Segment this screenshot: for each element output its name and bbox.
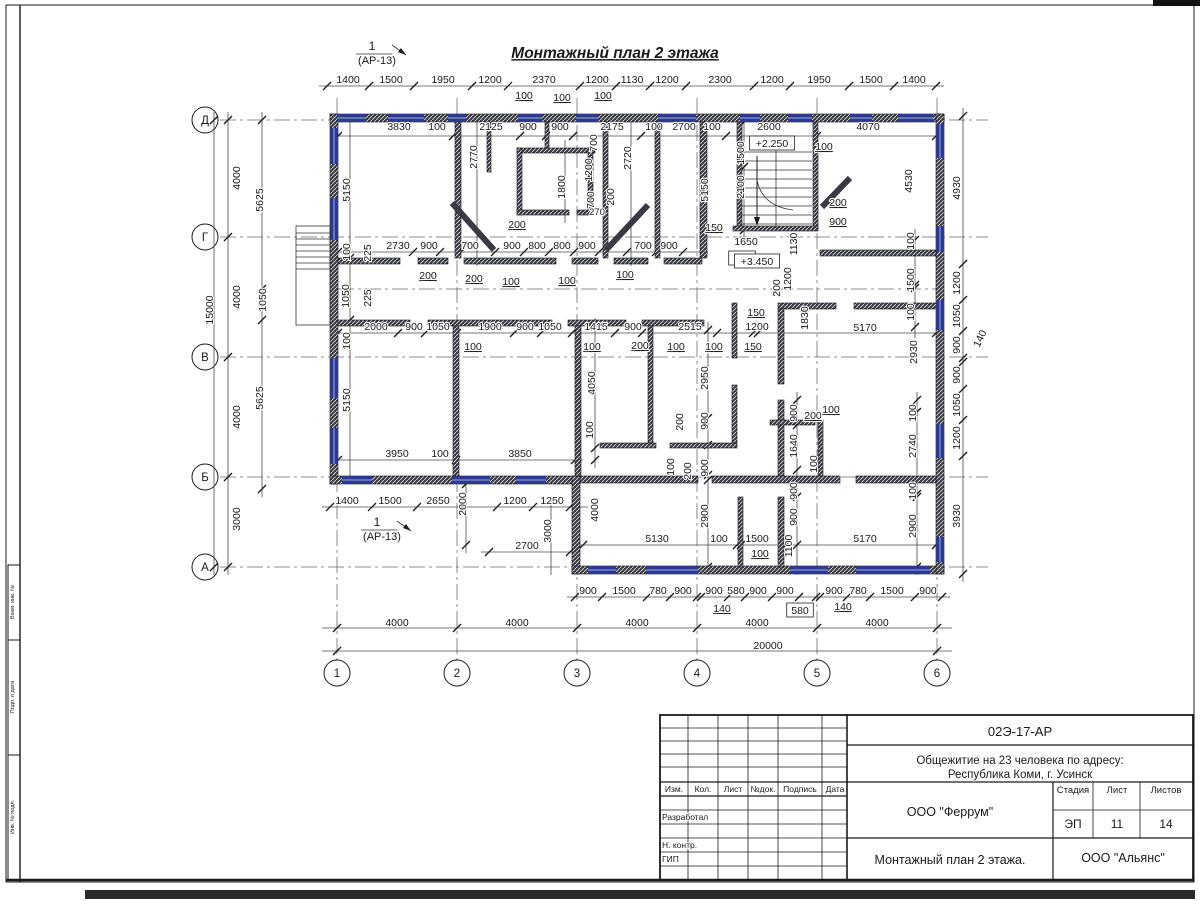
dim-label: 140 [713, 603, 731, 615]
dim-label: 1200 [951, 426, 963, 450]
dim-label: 4000 [385, 617, 409, 629]
scan-artifact [1153, 0, 1200, 6]
dim-label: 900 [749, 585, 767, 597]
dim-label: 900 [624, 321, 642, 333]
dim-label: 1050 [951, 304, 963, 328]
dim-label: 900 [674, 585, 692, 597]
dim-label: 2125 [479, 121, 503, 133]
dim-label: 2700 [672, 121, 696, 133]
dimension-labels: 1400150019501200237012001130120023001200… [204, 39, 989, 652]
dim-label: 1650 [734, 236, 758, 248]
dim-label: 200 [771, 279, 783, 297]
title-block-col-sign: Подпись [783, 784, 817, 794]
dim-label: 900 [951, 336, 963, 354]
dim-label: 1400 [902, 74, 926, 86]
wall-partition [856, 476, 936, 483]
dim-label: 4000 [865, 617, 889, 629]
dim-label: 900 [579, 585, 597, 597]
wall-partition [600, 443, 656, 448]
dim-label: 1100 [783, 535, 795, 558]
dim-label: 900 [788, 482, 800, 500]
title-block-row-ncontr: Н. контр. [662, 840, 697, 850]
dim-label: +2.250 [756, 138, 789, 150]
stamp-label-box1: Взам. инв. № [10, 585, 16, 619]
dim-label: 100 [594, 90, 612, 102]
dim-label: 150 [744, 341, 762, 353]
dim-label: 2000 [457, 492, 469, 516]
wall-partition [580, 476, 698, 483]
dim-label: 200 [674, 413, 686, 431]
dim-label: 1830 [799, 306, 811, 330]
wall-partition [614, 258, 648, 264]
dim-label: 1415 [584, 321, 608, 333]
wall-partition [670, 443, 737, 448]
dim-label: 100 [464, 341, 482, 353]
axis-label-row: Д [201, 115, 209, 127]
dim-label: 140 [834, 601, 852, 613]
title-block-contractor-org: ООО "Альянс" [1081, 851, 1165, 865]
dim-label: 900 [951, 366, 963, 384]
dim-label: 2740 [907, 434, 919, 458]
dim-label: 1500 [379, 74, 403, 86]
section-marker-number: 1 [369, 39, 376, 53]
wall-partition [418, 258, 448, 264]
wall-partition [732, 303, 737, 358]
dim-label: 1800 [556, 175, 568, 199]
wall-partition [712, 476, 840, 483]
axis-label-col: 6 [934, 668, 940, 680]
dim-label: 1500 [880, 585, 904, 597]
stamp-label-box2: Подп. и дата [10, 680, 16, 713]
dim-label: 1500 [745, 533, 769, 545]
dim-label: 900 [825, 585, 843, 597]
dim-label: 100 [907, 482, 919, 500]
dim-label: 1200 [503, 495, 527, 507]
dim-label: 1050 [257, 288, 269, 312]
dim-label: 1200 [760, 74, 784, 86]
wall-partition [655, 122, 660, 258]
wall-partition [778, 309, 784, 384]
dim-label: 100 [667, 341, 685, 353]
dim-label: 200 [631, 340, 649, 352]
dim-label: 900 [420, 240, 438, 252]
wall-partition [517, 148, 595, 153]
title-block-designer-org: ООО "Феррум" [907, 805, 993, 819]
dim-label: 700 [588, 134, 600, 152]
dim-label: 200 [465, 273, 483, 285]
dim-label: 200 [682, 462, 694, 480]
dim-label: 900 [516, 321, 534, 333]
dim-label: 900 [705, 585, 723, 597]
wall-partition [517, 210, 569, 215]
wall-partition [664, 258, 702, 264]
wall-partition [572, 258, 598, 264]
stamp-label-box3: Инв. № подл. [10, 799, 16, 834]
dim-label: 1200 [951, 271, 963, 295]
dim-label: 2770 [468, 145, 480, 169]
dim-label: 2730 [386, 240, 410, 252]
title-block-sheet-title: Монтажный план 2 этажа. [875, 853, 1026, 867]
dim-label: 100 [705, 341, 723, 353]
title-block-doc-number: 02Э-17-АР [988, 724, 1052, 739]
dim-label: 900 [503, 240, 521, 252]
dim-label: 1400 [335, 495, 359, 507]
dim-label: 100 [583, 341, 601, 353]
dim-label: 1200 [478, 74, 502, 86]
dim-label: 5625 [254, 386, 266, 410]
dim-label: 1130 [788, 233, 800, 256]
dim-label: 2300 [708, 74, 732, 86]
dim-label: 4050 [586, 371, 598, 395]
title-block-sheets-label: Листов [1151, 785, 1182, 796]
section-marker-ref: (АР-13) [358, 55, 396, 67]
dim-label: 100 [584, 421, 596, 439]
dim-label: 4930 [951, 176, 963, 200]
wall-partition [813, 122, 818, 228]
dim-label: 4000 [505, 617, 529, 629]
dim-label: 1500 [378, 495, 402, 507]
dim-label: 200 [804, 410, 822, 422]
dim-label: 20000 [753, 640, 782, 652]
title-block-col-date: Дата [826, 784, 845, 794]
dim-label: 780 [649, 585, 667, 597]
title-block-sheet: 11 [1111, 817, 1124, 831]
dim-label: 900 [919, 585, 937, 597]
dim-label: 200 [829, 197, 847, 209]
dim-label: 1500 [859, 74, 883, 86]
drawing-title: Монтажный план 2 этажа [511, 45, 719, 62]
dim-label: 1250 [540, 495, 564, 507]
dim-label: 1200 [782, 267, 794, 291]
title-block: 02Э-17-АРОбщежитие на 23 человека по адр… [660, 715, 1193, 880]
wall-partition [737, 122, 742, 228]
dim-label: 2930 [908, 340, 920, 364]
dim-label: 1200 [585, 74, 609, 86]
dim-label: 1500 [905, 268, 917, 292]
dim-label: 4530 [903, 169, 915, 193]
dim-label: 2900 [699, 504, 711, 528]
dim-label: 900 [788, 404, 800, 422]
dim-label: 1900 [478, 321, 502, 333]
scan-artifact [85, 890, 1195, 899]
axis-label-col: 2 [454, 668, 460, 680]
dim-label: 2700 [515, 540, 539, 552]
dim-label: 5150 [341, 388, 353, 412]
dim-label: 2000 [364, 321, 388, 333]
dim-label: 3000 [542, 519, 554, 543]
dim-label: 4000 [231, 285, 243, 309]
dim-label: 1050 [426, 321, 450, 333]
dim-label: 1050 [951, 393, 963, 417]
section-marker-ref: (АР-13) [363, 531, 401, 543]
dim-label: +3.450 [741, 256, 774, 268]
dim-label: 1200 [655, 74, 679, 86]
dim-label: 1200 [583, 158, 595, 182]
axis-label-col: 4 [694, 668, 701, 680]
title-block-row-gip: ГИП [662, 854, 679, 864]
dim-label: 580 [791, 605, 809, 617]
dim-label: 100 [808, 455, 820, 473]
dim-label: 1200 [745, 321, 769, 333]
title-block-sheet-label: Лист [1107, 785, 1128, 796]
title-block-col-list: Лист [724, 784, 743, 794]
dim-label: 15000 [204, 295, 216, 324]
title-block-stage: ЭП [1064, 817, 1081, 831]
wall-partition [732, 385, 737, 443]
dim-label: 150 [705, 222, 723, 234]
dim-label: 4000 [231, 405, 243, 429]
wall-partition [738, 497, 743, 567]
wall-partition [820, 250, 936, 256]
dim-label: 5170 [853, 322, 877, 334]
main-staircase [740, 148, 812, 228]
axis-label-col: 1 [334, 668, 340, 680]
title-block-col-izm: Изм. [665, 784, 683, 794]
title-block-project-line2: Республика Коми, г. Усинск [948, 769, 1093, 781]
dim-label: 2720 [622, 146, 634, 170]
title-block-col-kol: Кол. [695, 784, 712, 794]
dim-label: 5130 [645, 533, 669, 545]
dim-label: 1950 [807, 74, 831, 86]
dim-label: 900 [551, 121, 569, 133]
dim-label: 900 [788, 508, 800, 526]
dim-label: 140 [971, 328, 989, 349]
axis-label-row: Г [202, 232, 209, 244]
dim-label: 900 [699, 412, 711, 430]
dim-label: 2370 [532, 74, 556, 86]
dim-label: 100 [515, 90, 533, 102]
dim-label: 800 [553, 240, 571, 252]
dim-label: 2600 [757, 121, 781, 133]
dim-label: 700 [461, 240, 479, 252]
dim-label: 1950 [431, 74, 455, 86]
dim-label: 100 [645, 121, 663, 133]
wall-partition [517, 148, 522, 215]
axis-label-row: А [201, 562, 209, 574]
dim-label: 5150 [699, 178, 711, 202]
dim-label: 5625 [254, 188, 266, 212]
dim-label: 100 [558, 275, 576, 287]
dim-label: 3830 [387, 121, 411, 133]
title-block-col-doc: №док. [751, 784, 776, 794]
dim-label: 1640 [788, 434, 800, 458]
dim-label: 200 [419, 270, 437, 282]
floor-plan-drawing: Взам. инв. №Подп. и датаИнв. № подл. 123… [0, 0, 1200, 900]
dim-label: 900 [660, 240, 678, 252]
wall-partition [733, 226, 818, 231]
title-block-project-line1: Общежитие на 23 человека по адресу: [916, 755, 1123, 767]
dim-label: 100 [905, 303, 917, 321]
wall-partition [464, 258, 556, 264]
dim-label: 3850 [508, 448, 532, 460]
wall-partition [453, 326, 459, 476]
dim-label: 225 [362, 244, 374, 262]
dim-label: 270 [589, 207, 605, 218]
dim-label: 900 [829, 216, 847, 228]
dim-label: 150 [747, 307, 765, 319]
title-block-stage-label: Стадия [1057, 785, 1089, 796]
dim-label: 100 [616, 269, 634, 281]
exterior-stair [296, 226, 330, 325]
dim-label: 4000 [625, 617, 649, 629]
dim-label: 100 [822, 404, 840, 416]
axis-label-row: В [201, 352, 209, 364]
dim-label: 2950 [699, 366, 711, 390]
axis-label-row: Б [201, 472, 209, 484]
dim-label: 1500 [612, 585, 636, 597]
dim-label: 900 [578, 240, 596, 252]
dim-label: 780 [849, 585, 867, 597]
dim-label: 900 [776, 585, 794, 597]
dim-label: 4070 [856, 121, 880, 133]
dim-label: 100 [428, 121, 446, 133]
dim-label: 100 [703, 121, 721, 133]
axis-label-col: 5 [814, 668, 820, 680]
stamp-column: Взам. инв. №Подп. и датаИнв. № подл. [8, 565, 20, 880]
wall-partition [455, 122, 461, 258]
dim-label: 100 [710, 533, 728, 545]
dim-label: 5150 [341, 178, 353, 202]
dim-label: 100 [751, 548, 769, 560]
dim-label: 1050 [340, 284, 352, 308]
dim-label: 2650 [426, 495, 450, 507]
title-block-sheets: 14 [1159, 817, 1173, 831]
dim-label: 2175 [600, 121, 624, 133]
dim-label: 3000 [231, 507, 243, 531]
wall-partition [778, 400, 784, 476]
wall-outer [936, 114, 944, 574]
dim-label: 580 [727, 585, 745, 597]
dim-label: 100 [905, 232, 917, 250]
dim-label: 900 [699, 459, 711, 477]
drawing-sheet: Взам. инв. №Подп. и датаИнв. № подл. 123… [0, 0, 1200, 900]
dim-label: 1500 [735, 141, 747, 165]
dim-label: 1050 [538, 321, 562, 333]
dim-label: 1400 [336, 74, 360, 86]
dim-label: 800 [528, 240, 546, 252]
dim-label: 100 [907, 404, 919, 422]
section-marker-bottom [361, 521, 411, 531]
dim-label: 700 [634, 240, 652, 252]
wall-outer [572, 476, 580, 574]
dim-label: 2900 [907, 514, 919, 538]
dim-label: 100 [502, 276, 520, 288]
dim-label: 5170 [853, 533, 877, 545]
section-marker-top [356, 45, 406, 55]
dim-label: 2515 [678, 321, 702, 333]
dim-label: 2100 [735, 175, 747, 199]
dim-label: 200 [508, 219, 526, 231]
axis-label-col: 3 [574, 668, 580, 680]
section-marker-number: 1 [374, 515, 381, 529]
dim-label: 200 [605, 188, 617, 206]
dim-label: 1130 [621, 74, 644, 86]
dim-label: 4000 [745, 617, 769, 629]
dim-label: 3930 [951, 504, 963, 528]
wall-partition [854, 303, 938, 309]
dim-label: 900 [405, 321, 423, 333]
dim-label: 100 [553, 92, 571, 104]
dim-label: 100 [815, 141, 833, 153]
wall-partition [545, 122, 549, 150]
dim-label: 100 [665, 458, 677, 476]
title-block-row-developed: Разработал [662, 812, 708, 822]
dim-label: 225 [362, 289, 374, 307]
wall-partition [575, 326, 581, 476]
dim-label: 4000 [589, 498, 601, 522]
dim-label: 100 [341, 243, 353, 261]
dim-label: 3950 [385, 448, 409, 460]
dim-label: 4000 [231, 166, 243, 190]
dim-label: 900 [519, 121, 537, 133]
dim-label: 100 [341, 332, 353, 350]
dim-label: 100 [431, 448, 449, 460]
